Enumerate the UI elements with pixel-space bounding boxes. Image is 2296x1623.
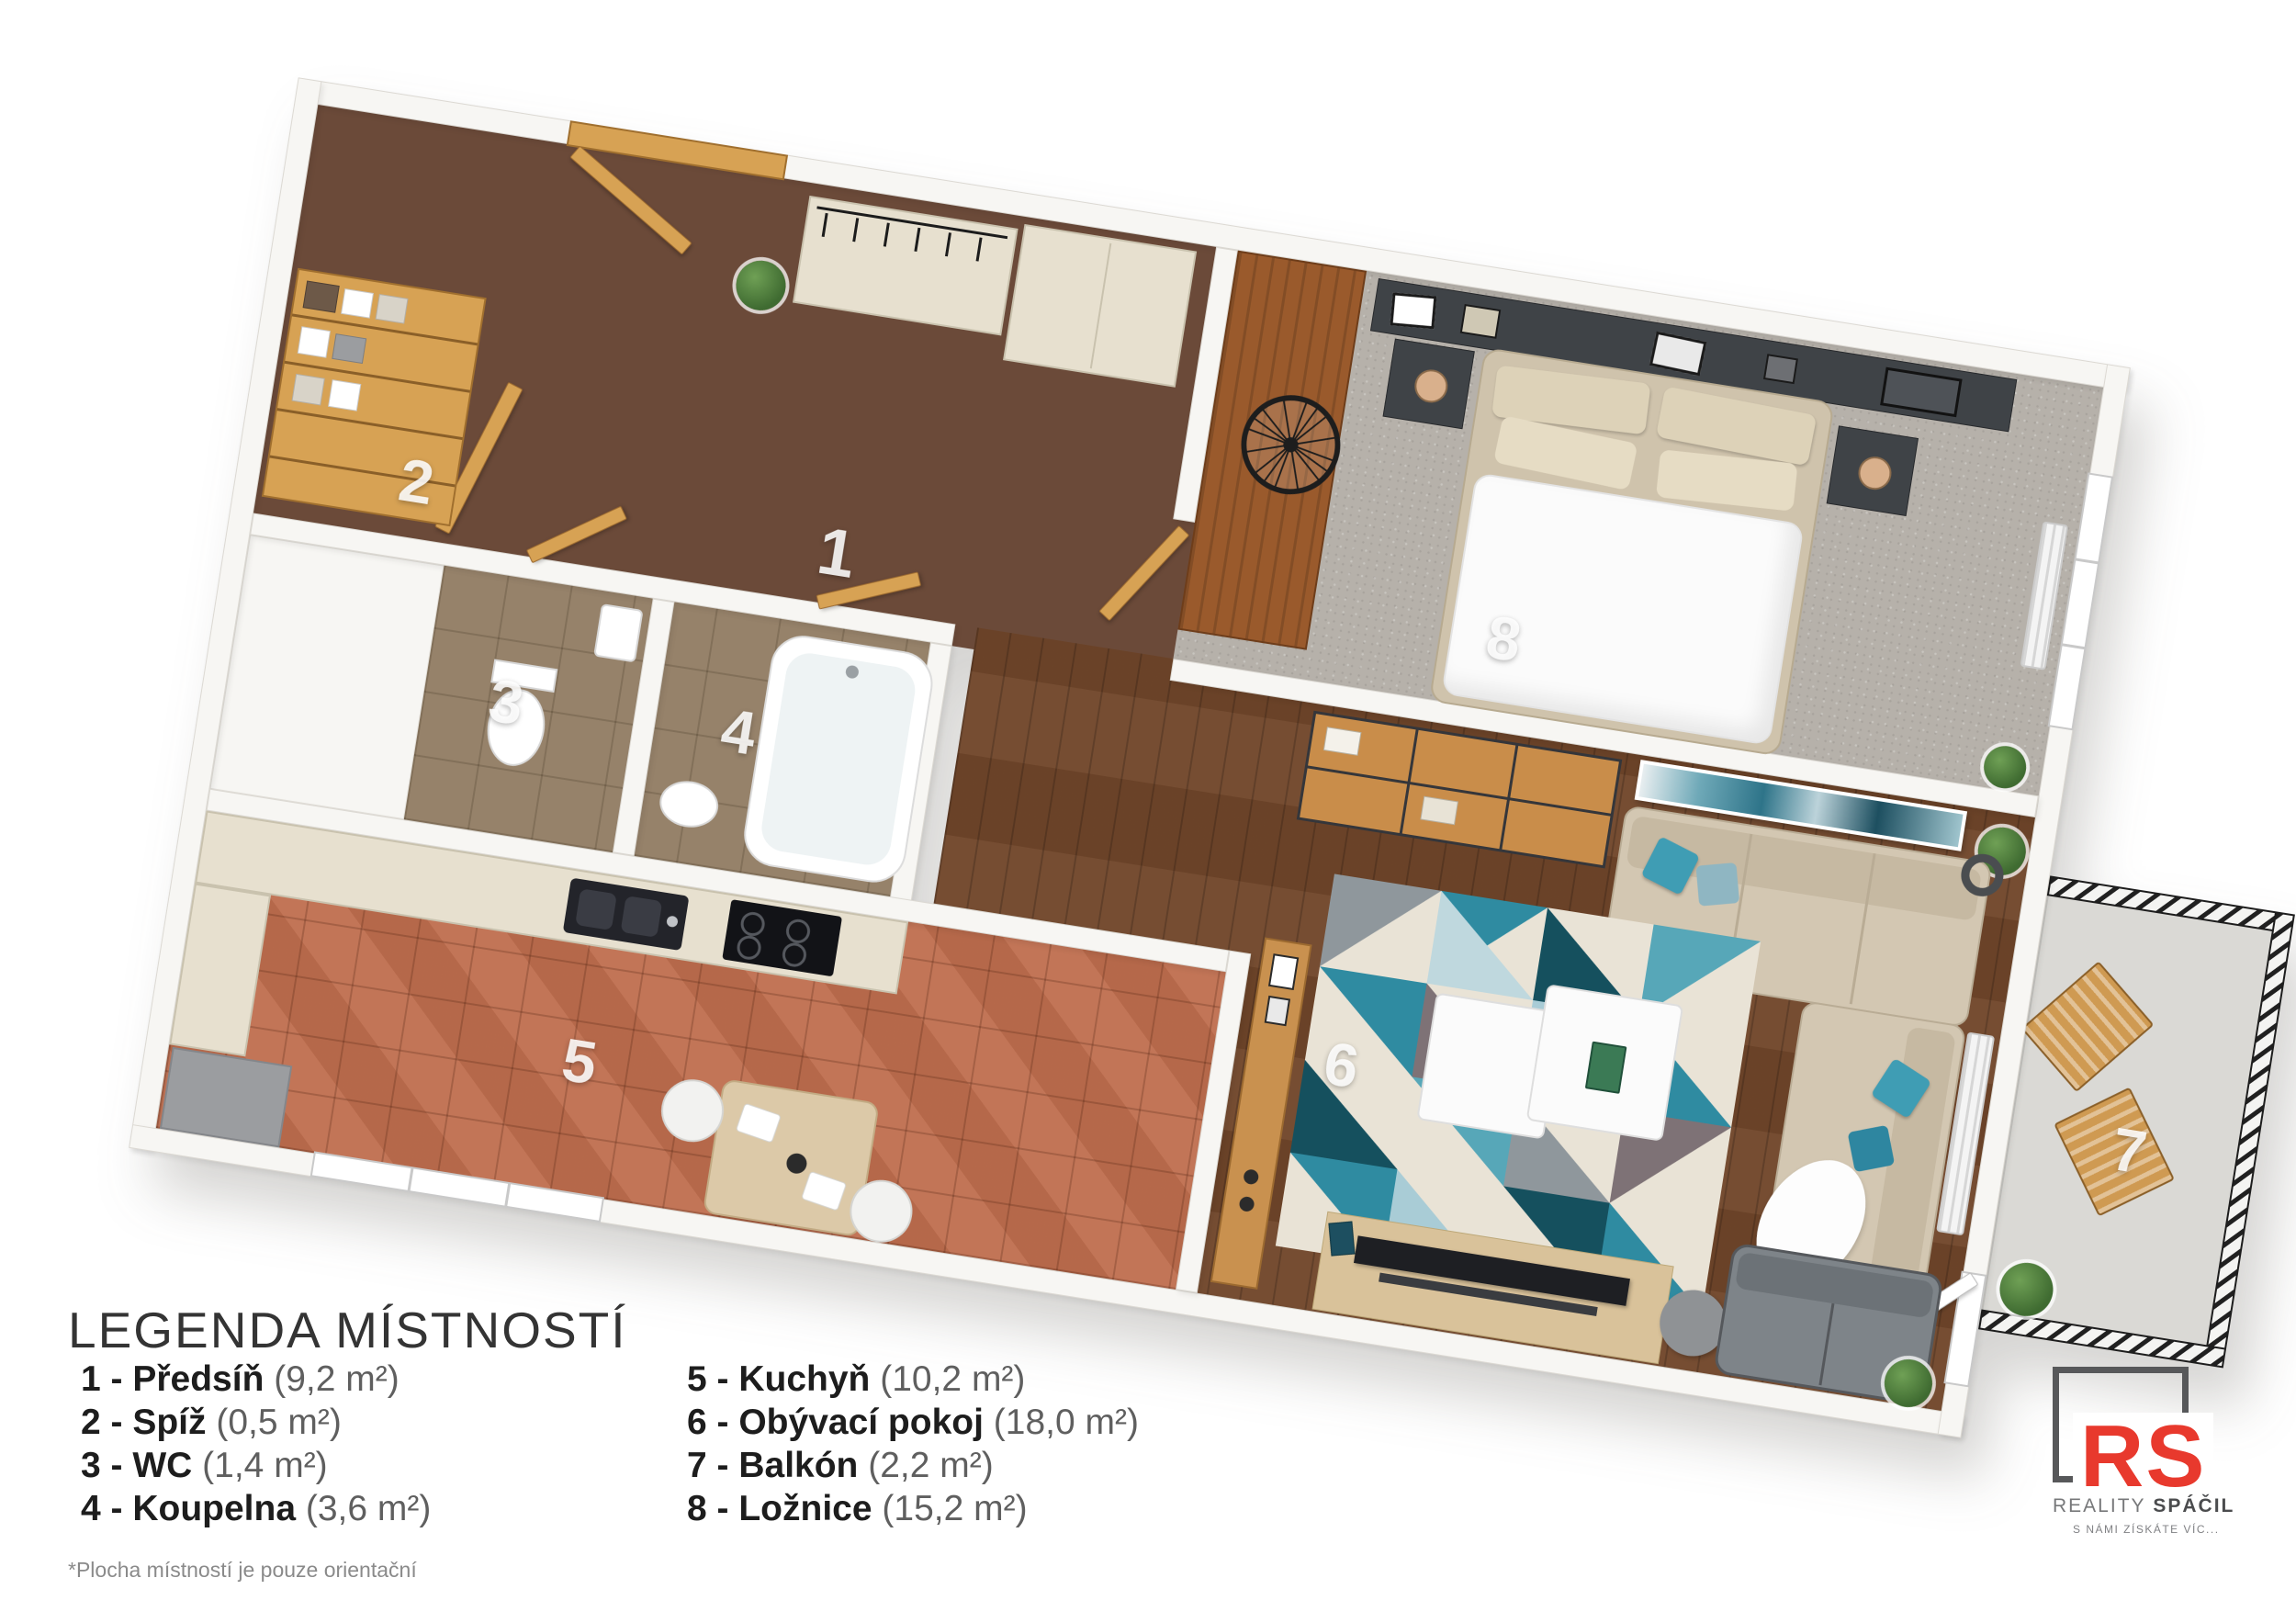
legend-column-2: 5 - Kuchyň (10,2 m²) 6 - Obývací pokoj (… (687, 1359, 1139, 1532)
floorplan-page: { "plan": { "rooms": [ {"num": "1", "nam… (0, 0, 2296, 1623)
nightstand (1827, 425, 1919, 516)
legend-title: LEGENDA MÍSTNOSTÍ (68, 1301, 627, 1359)
legend-item-label: 7 - Balkón (687, 1446, 858, 1485)
legend-item-area: (10,2 m²) (880, 1359, 1025, 1399)
legend-item: 5 - Kuchyň (10,2 m²) (687, 1359, 1139, 1403)
legend-item-label: 6 - Obývací pokoj (687, 1403, 984, 1442)
acapulco-wire-chair (1230, 384, 1352, 506)
legend-item-area: (0,5 m²) (216, 1403, 342, 1442)
legend-item: 3 - WC (1,4 m²) (81, 1446, 431, 1489)
legend-item-label: 3 - WC (81, 1446, 192, 1485)
legend-item-area: (15,2 m²) (882, 1489, 1027, 1528)
bed (1429, 347, 1835, 757)
legend-item-area: (2,2 m²) (868, 1446, 994, 1485)
logo-brand-bold: SPÁČIL (2146, 1495, 2235, 1516)
pantry-shelf (262, 268, 487, 526)
legend-item: 7 - Balkón (2,2 m²) (687, 1446, 1139, 1489)
logo-tagline: S NÁMI ZÍSKÁTE VÍC... (2073, 1523, 2220, 1536)
legend-item-label: 2 - Spíž (81, 1403, 207, 1442)
legend-item: 4 - Koupelna (3,6 m²) (81, 1489, 431, 1532)
pillow-teal (1848, 1125, 1896, 1173)
logo-monogram: RS (2073, 1413, 2213, 1501)
coffee-table (1526, 984, 1684, 1142)
installation-shaft (209, 535, 444, 819)
legend-item: 8 - Ložnice (15,2 m²) (687, 1489, 1139, 1532)
legend-item-area: (1,4 m²) (202, 1446, 328, 1485)
legend-column-1: 1 - Předsíň (9,2 m²) 2 - Spíž (0,5 m²) 3… (81, 1359, 431, 1532)
legend-item: 1 - Předsíň (9,2 m²) (81, 1359, 431, 1403)
legend-item-area: (3,6 m²) (306, 1489, 432, 1528)
legend-item: 6 - Obývací pokoj (18,0 m²) (687, 1403, 1139, 1446)
floorplan-3d-render: 1 2 3 4 5 6 7 8 (129, 77, 2131, 1437)
hall-wardrobe (1003, 224, 1197, 388)
nightstand (1383, 339, 1475, 430)
logo-brand-regular: REALITY (2053, 1495, 2146, 1516)
legend-footnote: *Plocha místností je pouze orientační (68, 1558, 417, 1583)
legend-item-area: (9,2 m²) (274, 1359, 400, 1399)
pillow-gray (1695, 862, 1739, 907)
legend-item-label: 5 - Kuchyň (687, 1359, 870, 1399)
legend-item-label: 8 - Ložnice (687, 1489, 872, 1528)
legend-item-label: 4 - Koupelna (81, 1489, 296, 1528)
legend-item-label: 1 - Předsíň (81, 1359, 264, 1399)
logo-brand-name: REALITY SPÁČIL (2053, 1495, 2200, 1517)
legend-item: 2 - Spíž (0,5 m²) (81, 1403, 431, 1446)
legend-item-area: (18,0 m²) (994, 1403, 1139, 1442)
realty-logo: RS REALITY SPÁČIL S NÁMI ZÍSKÁTE VÍC... (2053, 1367, 2200, 1560)
wc-sink (593, 603, 644, 662)
